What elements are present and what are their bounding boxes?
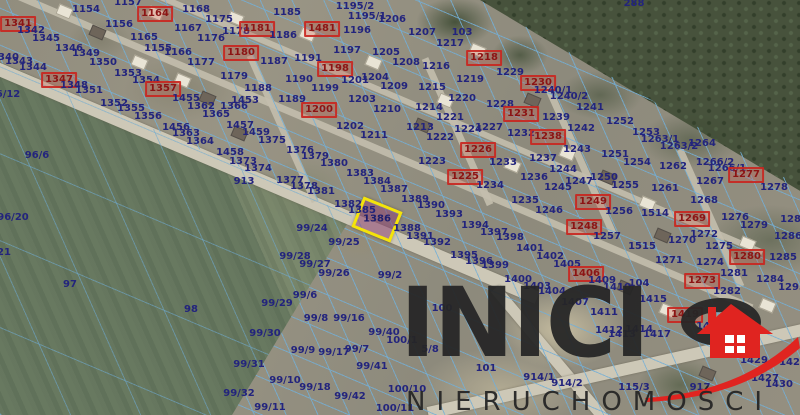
parcel-label: 1167	[174, 24, 202, 34]
parcel-label: 99/7	[345, 345, 370, 355]
parcel-label: 1222	[426, 133, 454, 143]
parcel-label: 1278	[760, 183, 788, 193]
building-rooftop	[230, 126, 248, 142]
parcel-label: 1350	[89, 58, 117, 68]
parcel-label: 1401	[516, 244, 544, 254]
parcel-label: 1342	[17, 26, 45, 36]
parcel-label: 99/6	[293, 291, 318, 301]
parcel-label: 1287	[780, 215, 800, 225]
building-rooftop	[468, 43, 486, 59]
parcel-label: 97	[63, 280, 77, 290]
parcel-label: 1252	[606, 117, 634, 127]
parcel-label: 1228	[486, 100, 514, 110]
building-rooftop	[364, 55, 382, 71]
parcel-label: 1208	[392, 58, 420, 68]
parcel-label: 99/32	[223, 389, 254, 399]
parcel-label: 1263/1	[641, 135, 679, 145]
parcel-label: 1266/1	[708, 164, 746, 174]
parcel-label: 1219	[456, 75, 484, 85]
parcel-label: 99/27	[299, 260, 330, 270]
logo-house-window-icon	[725, 335, 745, 353]
parcel-label: 1346	[55, 44, 83, 54]
building-rooftop	[653, 228, 671, 244]
parcel-label: 99/31	[233, 360, 264, 370]
building-rooftop	[130, 55, 148, 71]
parcel-label: 1245	[544, 183, 572, 193]
parcel-label-sold: 1481	[304, 21, 340, 37]
parcel-label: 1366	[220, 102, 248, 112]
parcel-label: 1236	[520, 173, 548, 183]
parcel-label: 1365	[202, 110, 230, 120]
parcel-label: 99/11	[254, 403, 285, 413]
building-rooftop	[146, 6, 164, 22]
parcel-label: 1286	[774, 232, 800, 242]
inicio-logo: INICI NIERUCHOMOŚCI	[398, 288, 800, 415]
parcel-label: 1384	[363, 177, 391, 187]
parcel-label: 1353	[114, 69, 142, 79]
parcel-label: 99/42	[334, 392, 365, 402]
parcel-label: 1389	[401, 195, 429, 205]
parcel-label: 1270	[668, 236, 696, 246]
parcel-label: 1343	[5, 57, 33, 67]
parcel-label: 98	[184, 305, 198, 315]
parcel-label: 99/26	[318, 269, 349, 279]
parcel-label: 99/9	[291, 346, 316, 356]
parcel-label: 1203	[348, 95, 376, 105]
parcel-label: 1254	[623, 158, 651, 168]
parcel-label: 1387	[380, 185, 408, 195]
parcel-label: 1456	[162, 123, 190, 133]
parcel-label: 1455	[172, 94, 200, 104]
building-rooftop	[198, 91, 216, 107]
parcel-label: 1157	[114, 0, 142, 8]
parcel-label: 1383	[346, 169, 374, 179]
parcel-label: 1345	[32, 34, 60, 44]
parcel-label: 1276	[721, 213, 749, 223]
parcel-label: 1207	[408, 28, 436, 38]
parcel-label: 99/41	[356, 362, 387, 372]
parcel-label-sold: 1357	[145, 81, 181, 97]
parcel-label-sold: 1341	[0, 16, 36, 32]
parcel-label: 1251	[601, 150, 629, 160]
cadastral-aerial-map[interactable]: 1157115411641168117511781181115611671341…	[0, 0, 800, 415]
parcel-label: 1217	[436, 39, 464, 49]
parcel-label: 1459	[242, 128, 270, 138]
parcel-label: 1397	[480, 228, 508, 238]
building-rooftop	[298, 27, 316, 43]
parcel-label: 1457	[226, 121, 254, 131]
parcel-label: 21	[0, 248, 11, 258]
building-rooftop	[413, 118, 431, 134]
parcel-label: 1393	[435, 210, 463, 220]
parcel-label: 1213	[406, 123, 434, 133]
parcel-label: 1402	[536, 252, 564, 262]
parcel-label: 1189	[278, 95, 306, 105]
parcel-label-sold: 1277	[728, 167, 764, 183]
parcel-label: 1210	[373, 105, 401, 115]
parcel-label: 1379	[301, 152, 329, 162]
logo-subtitle: NIERUCHOMOŚCI	[406, 387, 773, 415]
parcel-label-sold: 1238	[530, 129, 566, 145]
parcel-label: 99/25	[328, 238, 359, 248]
parcel-label: 1340	[0, 53, 19, 63]
parcel-label: 1195/2	[336, 2, 374, 12]
parcel-label: 1253	[632, 128, 660, 138]
parcel-label: 96/6	[25, 151, 50, 161]
parcel-label: 1233	[489, 158, 517, 168]
parcel-label: 99/18	[299, 383, 330, 393]
parcel-label: 1154	[72, 5, 100, 15]
parcel-label-sold: 1218	[466, 50, 502, 66]
parcel-label: 1349	[72, 49, 100, 59]
parcel-label: 1380	[320, 159, 348, 169]
parcel-label: 1176	[197, 34, 225, 44]
parcel-label: 1185	[273, 8, 301, 18]
parcel-label: 1206	[378, 15, 406, 25]
parcel-label: 1355	[117, 104, 145, 114]
parcel-label: 1196	[343, 26, 371, 36]
parcel-label: 1195/1	[348, 12, 386, 22]
parcel-label: 1220	[448, 94, 476, 104]
parcel-label: 1394	[461, 221, 489, 231]
parcel-label: 99/28	[279, 252, 310, 262]
parcel-label: 99/8	[304, 314, 329, 324]
parcel-label: 1261	[651, 184, 679, 194]
parcel-label: 1205	[372, 48, 400, 58]
parcel-label: 1279	[740, 221, 768, 231]
highlighted-parcel-label: 1386	[363, 214, 391, 225]
parcel-label: 99/16	[333, 314, 364, 324]
parcel-label: 96/20	[0, 213, 29, 223]
parcel-label: 1351	[75, 86, 103, 96]
parcel-label: 1186	[269, 31, 297, 41]
parcel-label: 1266/2	[696, 158, 734, 168]
parcel-label: 1285	[769, 253, 797, 263]
parcel-label: 99/29	[261, 299, 292, 309]
parcel-label: 1187	[260, 57, 288, 67]
parcel-label: 99/17	[318, 348, 349, 358]
parcel-label: 1284	[756, 275, 784, 285]
parcel-label: 1390	[417, 201, 445, 211]
parcel-label: 99/2	[378, 271, 403, 281]
parcel-label-sold: 1231	[503, 106, 539, 122]
parcel-label: 99/30	[249, 329, 280, 339]
building-rooftop	[523, 93, 541, 109]
parcel-label: 1156	[105, 20, 133, 30]
building-rooftop	[503, 158, 521, 174]
parcel-label: 99/24	[296, 224, 327, 234]
parcel-label: 1274	[696, 258, 724, 268]
parcel-label: 1197	[333, 46, 361, 56]
parcel-label: 1190	[285, 75, 313, 85]
parcel-label: 1344	[19, 63, 47, 73]
parcel-label: 1232	[507, 129, 535, 139]
parcel-label: 1354	[132, 76, 160, 86]
building-rooftop	[173, 73, 191, 89]
parcel-label: 103	[452, 28, 473, 38]
parcel-label: 288	[624, 0, 645, 9]
parcel-label-sold: 1164	[137, 6, 173, 22]
estate-street-2	[117, 0, 764, 255]
parcel-label: 1362	[187, 102, 215, 112]
parcel-label: 1515	[628, 242, 656, 252]
parcel-label: 1229	[496, 68, 524, 78]
estate-street-1	[0, 0, 753, 311]
parcel-label: 6/12	[0, 90, 20, 100]
logo-house-chimney-icon	[708, 307, 716, 323]
parcel-label: 99/40	[368, 328, 399, 338]
parcel-label: 1199	[311, 84, 339, 94]
parcel-label: 99/10	[269, 376, 300, 386]
parcel-label: 1264	[688, 139, 716, 149]
parcel-label: 1398	[496, 233, 524, 243]
parcel-label: 1241	[576, 103, 604, 113]
